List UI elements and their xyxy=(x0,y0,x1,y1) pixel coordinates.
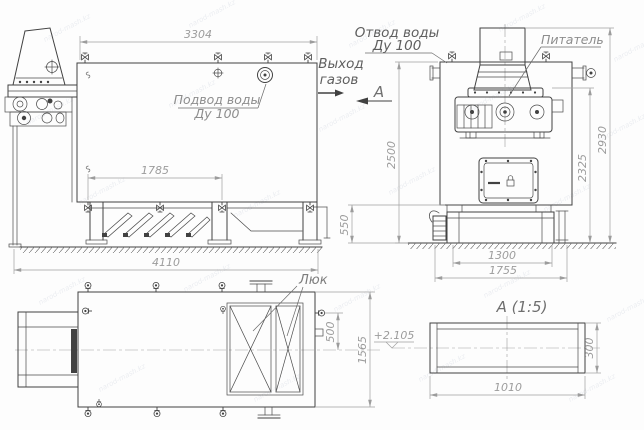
crosshair-mark xyxy=(213,68,223,78)
watermark-text: narod-mash.kz xyxy=(567,372,617,404)
support-frame xyxy=(86,202,321,244)
water-inlet-label: Подвод воды Ду 100 xyxy=(174,84,266,121)
watermark-text: narod-mash.kz xyxy=(605,292,644,324)
valve-icon xyxy=(220,407,226,417)
watermark-text: narod-mash.kz xyxy=(37,275,87,307)
valve-icon xyxy=(82,53,89,63)
dim-2325: 2325 xyxy=(552,88,594,243)
section-title: А (1:5) xyxy=(496,298,548,316)
section-cut-marker: А xyxy=(356,83,392,105)
dim-1565: 1565 xyxy=(315,292,375,407)
watermark-text: narod-mash.kz xyxy=(187,0,237,30)
weld-mark xyxy=(86,72,90,78)
front-view: Отвод воды Ду 100 Выход газов А Питатель xyxy=(318,24,616,282)
gas-outlet-label: Выход газов xyxy=(318,56,364,97)
watermark-text: narod-mash.kz xyxy=(542,182,592,214)
section-letter: А xyxy=(373,83,384,101)
watermark-text: narod-mash.kz xyxy=(182,262,232,294)
feeder-label: Питатель xyxy=(509,32,604,96)
valve-icon xyxy=(265,53,272,63)
dim-1300-value: 1300 xyxy=(488,249,516,262)
flanged-nozzle-bottom xyxy=(258,407,280,418)
flow-arrow-icon xyxy=(318,90,344,97)
valve-icon xyxy=(449,52,456,62)
valve-icon xyxy=(315,310,325,316)
valve-icon xyxy=(219,202,226,212)
dim-2325-value: 2325 xyxy=(576,154,589,182)
drawing-svg: narod-mash.kz narod-mash.kz narod-mash.k… xyxy=(0,0,644,430)
dim-1565-value: 1565 xyxy=(356,336,369,364)
ground-line xyxy=(20,247,322,253)
dim-3304-value: 3304 xyxy=(184,28,212,41)
water-outlet-label: Отвод воды Ду 100 xyxy=(355,25,447,63)
flanged-nozzle-top xyxy=(250,281,272,292)
dim-300-value: 300 xyxy=(583,338,596,359)
gas-outlet-line1: Выход xyxy=(318,56,364,72)
elevation-value: +2.105 xyxy=(374,329,415,342)
loading-chute xyxy=(474,28,531,90)
right-stub xyxy=(572,66,596,80)
watermark-text: narod-mash.kz xyxy=(97,362,147,394)
furnace-body xyxy=(440,62,572,205)
padlock-icon xyxy=(507,176,514,186)
dim-550-value: 550 xyxy=(338,215,351,236)
dim-2930-value: 2930 xyxy=(596,126,609,154)
grate-slats xyxy=(102,213,210,237)
valve-icon xyxy=(219,282,225,292)
valve-icon xyxy=(154,407,160,417)
access-door xyxy=(479,158,538,203)
watermark-text: narod-mash.kz xyxy=(612,32,644,64)
gas-outlet-stub xyxy=(430,66,440,80)
weld-mark xyxy=(86,166,90,172)
dim-1010-value: 1010 xyxy=(494,381,522,394)
technical-drawing-canvas: narod-mash.kz narod-mash.kz narod-mash.k… xyxy=(0,0,644,430)
water-inlet-line1: Подвод воды xyxy=(174,92,261,107)
dim-1785: 1785 xyxy=(88,164,222,200)
watermark-text: narod-mash.kz xyxy=(232,188,282,220)
water-outlet-line2: Ду 100 xyxy=(372,38,422,54)
valve-icon xyxy=(85,407,91,417)
dim-1755-value: 1755 xyxy=(489,264,517,277)
watermark-text: narod-mash.kz xyxy=(497,2,547,34)
dim-2500-value: 2500 xyxy=(385,141,398,169)
dim-1785-value: 1785 xyxy=(141,164,169,177)
hatch-label-text: Люк xyxy=(298,273,328,288)
valve-icon xyxy=(543,52,550,62)
dim-500-value: 500 xyxy=(324,322,337,343)
side-stub xyxy=(315,329,323,336)
valve-icon xyxy=(307,202,314,212)
watermark-text: narod-mash.kz xyxy=(332,282,382,314)
side-view: Подвод воды Ду 100 3304 1785 xyxy=(5,28,330,274)
gas-outlet-line2: газов xyxy=(320,72,359,88)
dim-500: 500 xyxy=(324,313,343,350)
section-view: А (1:5) 300 1010 xyxy=(392,298,601,399)
feeder-label-text: Питатель xyxy=(541,32,604,47)
valve-icon xyxy=(153,282,159,292)
dim-550: 550 xyxy=(338,205,445,243)
elevation-mark: +2.105 xyxy=(374,329,415,348)
feeder-drive-assembly xyxy=(5,28,77,247)
water-inlet-flange xyxy=(258,68,273,83)
dim-1010: 1010 xyxy=(430,376,585,399)
valve-icon xyxy=(85,282,91,292)
watermark-text: narod-mash.kz xyxy=(417,352,467,384)
feeder-plan xyxy=(18,312,78,387)
hatch-label: Люк xyxy=(253,273,328,336)
dim-2500: 2500 xyxy=(385,62,438,243)
valve-icon xyxy=(82,308,92,314)
valve-icon xyxy=(215,53,222,63)
drain-elbow xyxy=(313,207,330,238)
valve-icon xyxy=(305,53,312,63)
valve-icon xyxy=(157,202,164,212)
dim-2930: 2930 xyxy=(525,28,614,243)
watermark-text: narod-mash.kz xyxy=(317,102,367,134)
dim-3304: 3304 xyxy=(80,28,317,60)
valve-icon xyxy=(221,306,226,314)
dim-4110-value: 4110 xyxy=(152,256,180,269)
valve-icon xyxy=(97,399,102,407)
